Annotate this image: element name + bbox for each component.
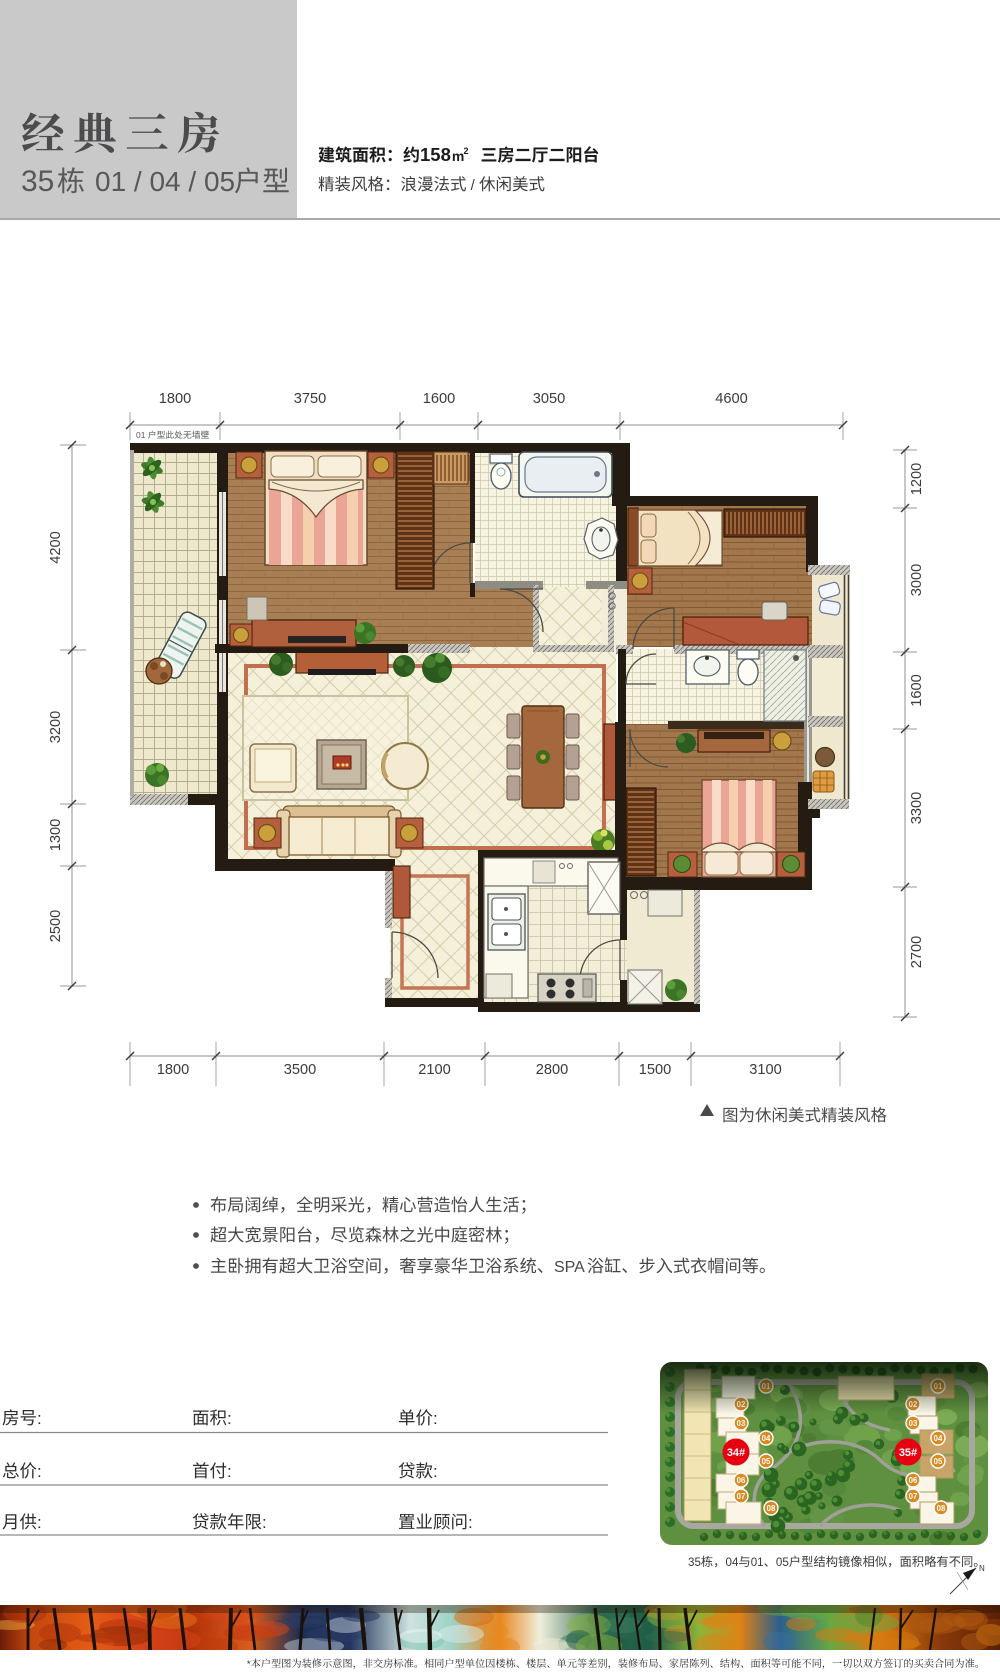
svg-text:07: 07 <box>737 1492 746 1501</box>
svg-text:01: 01 <box>136 430 148 440</box>
svg-text:158: 158 <box>420 144 451 165</box>
svg-text:3750: 3750 <box>294 391 326 407</box>
svg-text:04: 04 <box>934 1434 943 1443</box>
svg-text:35#: 35# <box>899 1447 917 1459</box>
svg-text:/: / <box>467 177 480 194</box>
svg-text::: : <box>468 1513 473 1532</box>
svg-text:04: 04 <box>726 1556 739 1569</box>
svg-text:05: 05 <box>762 1457 771 1466</box>
svg-text:3050: 3050 <box>533 391 565 407</box>
svg-text:06: 06 <box>737 1476 746 1485</box>
svg-text::: : <box>227 1409 232 1428</box>
svg-text:3000: 3000 <box>909 564 925 596</box>
svg-text::: : <box>227 1462 232 1481</box>
svg-text:3100: 3100 <box>749 1062 781 1078</box>
svg-text:3300: 3300 <box>909 792 925 824</box>
svg-text:1300: 1300 <box>48 819 64 851</box>
svg-text:1600: 1600 <box>909 674 925 706</box>
svg-text:08: 08 <box>937 1504 946 1513</box>
svg-text:m: m <box>452 148 464 164</box>
svg-text:2500: 2500 <box>48 910 64 942</box>
svg-text:07: 07 <box>909 1492 918 1501</box>
svg-text::: : <box>262 1513 267 1532</box>
svg-text:SPA: SPA <box>554 1259 585 1276</box>
svg-text:2: 2 <box>464 146 469 156</box>
svg-text:06: 06 <box>909 1476 918 1485</box>
svg-text:1800: 1800 <box>157 1062 189 1078</box>
svg-text:3200: 3200 <box>48 711 64 743</box>
svg-text:*: * <box>247 1659 251 1670</box>
svg-text:2700: 2700 <box>909 936 925 968</box>
svg-text:1200: 1200 <box>909 463 925 495</box>
svg-text:3500: 3500 <box>284 1062 316 1078</box>
svg-text::: : <box>37 1409 42 1428</box>
svg-text::: : <box>433 1409 438 1428</box>
svg-text:03: 03 <box>909 1419 918 1428</box>
svg-text:04: 04 <box>762 1434 771 1443</box>
svg-text:34#: 34# <box>727 1447 745 1459</box>
svg-text:05: 05 <box>776 1556 789 1569</box>
svg-text:01 / 04 / 05: 01 / 04 / 05 <box>95 166 235 197</box>
svg-text::: : <box>37 1513 42 1532</box>
svg-text:1800: 1800 <box>159 391 191 407</box>
svg-text:35: 35 <box>688 1556 701 1569</box>
svg-text:4200: 4200 <box>48 531 64 563</box>
svg-text::: : <box>433 1462 438 1481</box>
svg-text:03: 03 <box>737 1419 746 1428</box>
svg-text:01: 01 <box>751 1556 764 1569</box>
svg-text:1600: 1600 <box>423 391 455 407</box>
svg-text:2800: 2800 <box>536 1062 568 1078</box>
svg-text::: : <box>37 1462 42 1481</box>
svg-text:2100: 2100 <box>418 1062 450 1078</box>
svg-text:35: 35 <box>21 165 54 198</box>
svg-text:1500: 1500 <box>639 1062 671 1078</box>
svg-text:N: N <box>979 1564 985 1573</box>
svg-text:08: 08 <box>767 1504 776 1513</box>
svg-text:4600: 4600 <box>715 391 747 407</box>
svg-text:05: 05 <box>934 1457 943 1466</box>
